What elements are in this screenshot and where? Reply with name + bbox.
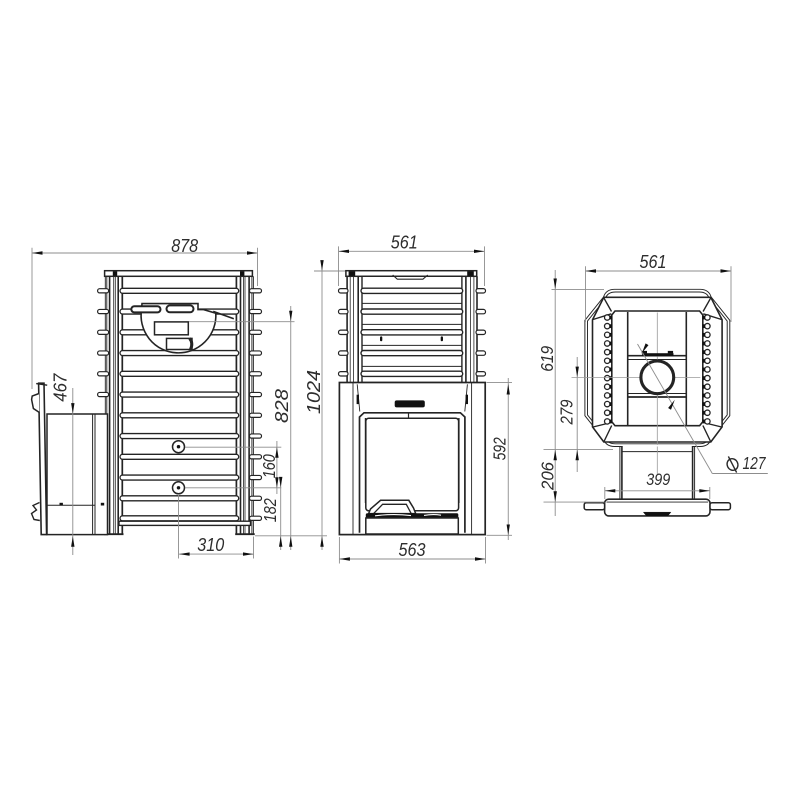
svg-text:563: 563 — [399, 539, 427, 560]
svg-text:1024: 1024 — [303, 370, 324, 414]
svg-text:310: 310 — [197, 534, 225, 555]
svg-text:561: 561 — [391, 232, 418, 253]
svg-text:828: 828 — [271, 388, 292, 423]
svg-text:561: 561 — [640, 251, 667, 272]
svg-text:467: 467 — [50, 373, 71, 402]
svg-text:206: 206 — [538, 462, 558, 491]
svg-text:619: 619 — [537, 346, 557, 372]
svg-text:182: 182 — [260, 498, 280, 522]
svg-text:127: 127 — [743, 453, 767, 473]
svg-text:160: 160 — [259, 454, 279, 478]
svg-text:279: 279 — [557, 399, 577, 425]
svg-text:399: 399 — [646, 470, 670, 489]
svg-text:592: 592 — [490, 437, 510, 460]
svg-text:878: 878 — [171, 235, 199, 256]
